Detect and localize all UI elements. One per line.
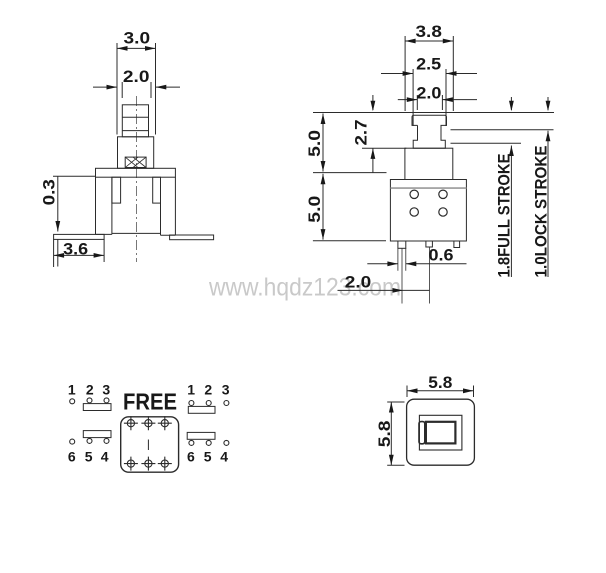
svg-text:www.hqdz123.com: www.hqdz123.com bbox=[208, 274, 401, 302]
svg-text:4: 4 bbox=[101, 449, 109, 465]
svg-text:5: 5 bbox=[204, 449, 212, 465]
svg-text:2.5: 2.5 bbox=[416, 55, 441, 74]
svg-text:0.3: 0.3 bbox=[40, 179, 59, 205]
svg-text:5.8: 5.8 bbox=[428, 373, 452, 392]
svg-text:1.0LOCK STROKE: 1.0LOCK STROKE bbox=[532, 146, 551, 278]
svg-text:3.0: 3.0 bbox=[124, 29, 151, 48]
svg-text:2: 2 bbox=[204, 381, 212, 397]
svg-text:5.0: 5.0 bbox=[305, 130, 324, 157]
svg-text:2.0: 2.0 bbox=[416, 84, 441, 103]
svg-text:3: 3 bbox=[222, 381, 230, 397]
svg-text:1: 1 bbox=[187, 381, 195, 397]
svg-text:1.8FULL STROKE: 1.8FULL STROKE bbox=[495, 154, 514, 278]
svg-text:2.0: 2.0 bbox=[123, 67, 150, 86]
svg-text:5.8: 5.8 bbox=[375, 421, 394, 448]
svg-text:4: 4 bbox=[220, 449, 228, 465]
svg-text:3.6: 3.6 bbox=[63, 240, 88, 259]
svg-text:3.8: 3.8 bbox=[416, 22, 442, 41]
svg-text:5: 5 bbox=[85, 449, 93, 465]
svg-text:2.0: 2.0 bbox=[345, 273, 372, 292]
svg-text:0.6: 0.6 bbox=[429, 246, 454, 265]
svg-text:2: 2 bbox=[86, 381, 94, 397]
svg-text:5.0: 5.0 bbox=[305, 196, 324, 223]
svg-text:2.7: 2.7 bbox=[352, 120, 371, 146]
svg-text:6: 6 bbox=[187, 449, 195, 465]
svg-text:FREE: FREE bbox=[123, 388, 177, 414]
svg-text:6: 6 bbox=[68, 449, 76, 465]
svg-text:1: 1 bbox=[68, 381, 76, 397]
svg-text:3: 3 bbox=[102, 381, 110, 397]
